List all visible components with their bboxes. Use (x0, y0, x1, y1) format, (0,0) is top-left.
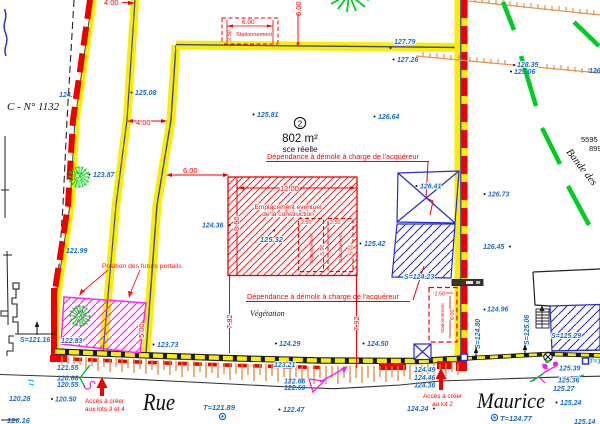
svg-text:Végétation: Végétation (250, 309, 285, 318)
svg-text:5.00: 5.00 (320, 245, 326, 256)
svg-text:7.92: 7.92 (352, 316, 361, 331)
svg-text:124.96: 124.96 (487, 307, 509, 314)
svg-text:5595: 5595 (581, 135, 598, 144)
svg-text:899: 899 (589, 144, 600, 153)
svg-text:au lot 2: au lot 2 (432, 401, 453, 408)
svg-text:5.00: 5.00 (137, 323, 146, 338)
svg-text:125.81: 125.81 (257, 112, 279, 119)
svg-text:2.50: 2.50 (301, 220, 312, 226)
svg-text:Dépendance à démolir à charge: Dépendance à démolir à charge de l'acqué… (267, 152, 419, 161)
svg-text:124.29: 124.29 (279, 341, 301, 348)
svg-text:5.00: 5.00 (349, 245, 355, 256)
svg-text:124.24: 124.24 (407, 406, 429, 413)
svg-text:6.00: 6.00 (242, 19, 255, 26)
svg-text:124.46: 124.46 (414, 375, 436, 382)
svg-text:125.08: 125.08 (135, 90, 157, 97)
svg-text:Accès à créer: Accès à créer (85, 398, 125, 405)
svg-text:2.50: 2.50 (435, 292, 446, 298)
svg-text:126.64: 126.64 (378, 114, 400, 121)
svg-text:126.73: 126.73 (488, 192, 510, 199)
svg-text:124.36: 124.36 (414, 383, 436, 390)
svg-text:125.27: 125.27 (553, 386, 576, 393)
svg-text:125.36: 125.36 (558, 378, 580, 385)
svg-text:7.82: 7.82 (225, 314, 234, 329)
svg-text:127.26: 127.26 (397, 57, 419, 64)
svg-text:125.42: 125.42 (364, 241, 386, 248)
svg-text:126: 126 (589, 68, 600, 75)
svg-text:123.73: 123.73 (157, 342, 179, 349)
svg-text:8.60: 8.60 (232, 216, 241, 231)
svg-text:122.47: 122.47 (283, 407, 306, 414)
svg-text:4.00: 4.00 (104, 0, 119, 7)
svg-text:802 m²: 802 m² (282, 133, 318, 145)
svg-text:S=124.80: S=124.80 (475, 319, 482, 349)
svg-text:121.99: 121.99 (66, 248, 88, 255)
svg-text:124.50: 124.50 (367, 341, 389, 348)
svg-text:128.35: 128.35 (517, 62, 539, 69)
svg-text:Position des futurs portails: Position des futurs portails (102, 263, 182, 270)
svg-text:Stationnement: Stationnement (236, 32, 273, 38)
svg-text:2.50: 2.50 (330, 220, 341, 226)
svg-text:122.60: 122.60 (284, 385, 306, 392)
svg-text:Stationnement: Stationnement (309, 233, 314, 263)
svg-text:122.83: 122.83 (61, 338, 83, 345)
svg-text:S=121.16: S=121.16 (20, 337, 50, 344)
svg-text:6.00: 6.00 (294, 1, 303, 16)
svg-text:125.14: 125.14 (574, 419, 596, 424)
svg-text:12.00: 12.00 (280, 184, 299, 193)
svg-text:124.36: 124.36 (202, 223, 224, 230)
svg-text:120.28: 120.28 (9, 396, 31, 403)
svg-text:2.50: 2.50 (227, 30, 233, 41)
svg-text:125.06: 125.06 (514, 69, 536, 76)
svg-text:6.00: 6.00 (450, 310, 456, 321)
svg-text:126.45: 126.45 (483, 244, 505, 251)
svg-text:Dépendance à démolir à charge: Dépendance à démolir à charge de l'acqué… (247, 292, 399, 301)
svg-text:126.41: 126.41 (420, 184, 442, 191)
svg-text:Stationnement: Stationnement (440, 303, 445, 333)
svg-text:aux lots 3 et 4: aux lots 3 et 4 (85, 406, 125, 413)
svg-text:Maurice: Maurice (476, 388, 545, 413)
svg-text:120.50: 120.50 (55, 397, 77, 404)
svg-text:125.24: 125.24 (560, 400, 582, 407)
svg-text:T=124.77: T=124.77 (500, 414, 533, 423)
svg-text:S=125.06: S=125.06 (524, 315, 531, 345)
svg-text:Rue: Rue (142, 390, 175, 416)
svg-text:123.87: 123.87 (93, 172, 116, 179)
svg-text:Stationnement: Stationnement (338, 233, 343, 263)
svg-text:Emplacement éventuel: Emplacement éventuel (254, 204, 322, 211)
svg-text:2: 2 (298, 119, 303, 129)
svg-text:4.00: 4.00 (136, 118, 151, 127)
svg-text:123.21: 123.21 (274, 362, 296, 369)
svg-text:124.49: 124.49 (414, 367, 436, 374)
svg-text:S=124.23: S=124.23 (404, 274, 434, 281)
svg-text:C - N° 1132: C - N° 1132 (7, 101, 60, 113)
svg-text:127.79: 127.79 (394, 39, 416, 46)
svg-text:T=121.89: T=121.89 (203, 403, 236, 412)
svg-text:121.55: 121.55 (57, 365, 79, 372)
svg-text:120.55: 120.55 (57, 382, 79, 389)
svg-text:de la construction: de la construction (262, 211, 314, 218)
svg-text:Accès à créer: Accès à créer (423, 393, 463, 400)
svg-text:T=1: T=1 (589, 359, 600, 366)
svg-text:S=125.29: S=125.29 (551, 333, 581, 340)
svg-text:125.32: 125.32 (260, 235, 284, 244)
svg-text:6.00: 6.00 (183, 166, 198, 175)
svg-text:125.39: 125.39 (559, 366, 581, 373)
